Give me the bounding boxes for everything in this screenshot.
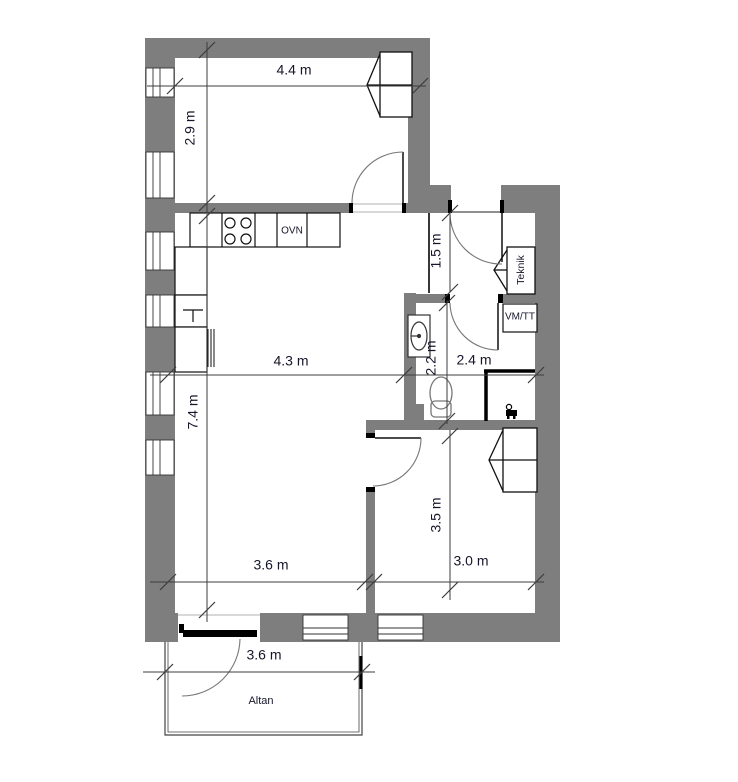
wall-left <box>145 38 175 642</box>
opening-balcony <box>178 613 260 642</box>
dim-living-bottom-width: 3.6 m <box>253 557 288 573</box>
dim-living-width: 4.3 m <box>273 353 308 369</box>
interior-walls <box>175 203 560 613</box>
kitchen-counter <box>190 213 340 247</box>
door-post <box>366 487 375 492</box>
door-balcony <box>182 639 240 696</box>
door-post <box>349 203 353 213</box>
label-oven: OVN <box>281 226 303 237</box>
window <box>146 232 174 270</box>
window <box>303 615 348 640</box>
dim-bathroom-width: 2.4 m <box>456 352 491 368</box>
door-bedroom2 <box>373 438 421 486</box>
opening-bedroom1 <box>352 203 403 213</box>
shower-tap-icon <box>506 404 517 419</box>
window <box>378 615 423 640</box>
opening-bedroom2 <box>366 438 375 487</box>
door-bedroom1 <box>352 152 403 203</box>
balcony-door-slab <box>183 630 257 637</box>
wardrobe-bedroom2 <box>489 428 537 492</box>
window <box>146 68 174 97</box>
dim-bathroom-depth: 2.2 m <box>423 340 439 375</box>
opening-entry <box>451 185 501 213</box>
door-post <box>366 433 375 438</box>
dim-bedroom2-depth: 3.5 m <box>428 497 444 532</box>
label-washer-dryer: VM/TT <box>505 312 535 323</box>
floor-plan-drawing: 4.4 m 2.9 m 1.5 m 4.3 m 2.4 m 2.2 m 7.4 … <box>0 0 738 782</box>
door-post <box>179 624 184 633</box>
wall-bathroom-top-b <box>500 294 535 303</box>
window <box>146 152 174 198</box>
floor-plan-page: 4.4 m 2.9 m 1.5 m 4.3 m 2.4 m 2.2 m 7.4 … <box>0 0 738 782</box>
window <box>146 295 174 327</box>
dim-balcony-width: 3.6 m <box>246 647 281 663</box>
window <box>146 372 174 415</box>
door-entry <box>450 213 502 264</box>
label-balcony: Altan <box>248 695 273 707</box>
dim-bedroom1-depth: 2.9 m <box>182 110 198 145</box>
door-post <box>498 294 503 303</box>
kitchen-lower-cabinet <box>175 327 207 372</box>
wardrobe-bedroom1 <box>367 52 412 117</box>
dishwasher-hatch-icon <box>208 329 214 367</box>
wall-bathroom-top-a <box>416 294 446 303</box>
door-post <box>402 203 406 213</box>
dim-living-depth: 7.4 m <box>185 394 201 429</box>
kitchen-tall-cabinet <box>175 247 207 295</box>
wall-toilet-notch <box>408 404 424 420</box>
window <box>146 440 174 475</box>
door-post <box>500 200 504 213</box>
wall-right <box>535 185 560 642</box>
dim-entry-depth: 1.5 m <box>428 233 444 268</box>
kitchen <box>175 213 340 372</box>
dim-bedroom1-width: 4.4 m <box>276 62 311 78</box>
toilet-icon <box>430 377 452 417</box>
door-bathroom <box>450 303 498 350</box>
kitchen-sink-cabinet <box>175 295 207 327</box>
dim-bedroom2-width: 3.0 m <box>453 553 488 569</box>
label-tech-closet: Teknik <box>515 254 527 285</box>
labels: 4.4 m 2.9 m 1.5 m 4.3 m 2.4 m 2.2 m 7.4 … <box>182 62 535 707</box>
